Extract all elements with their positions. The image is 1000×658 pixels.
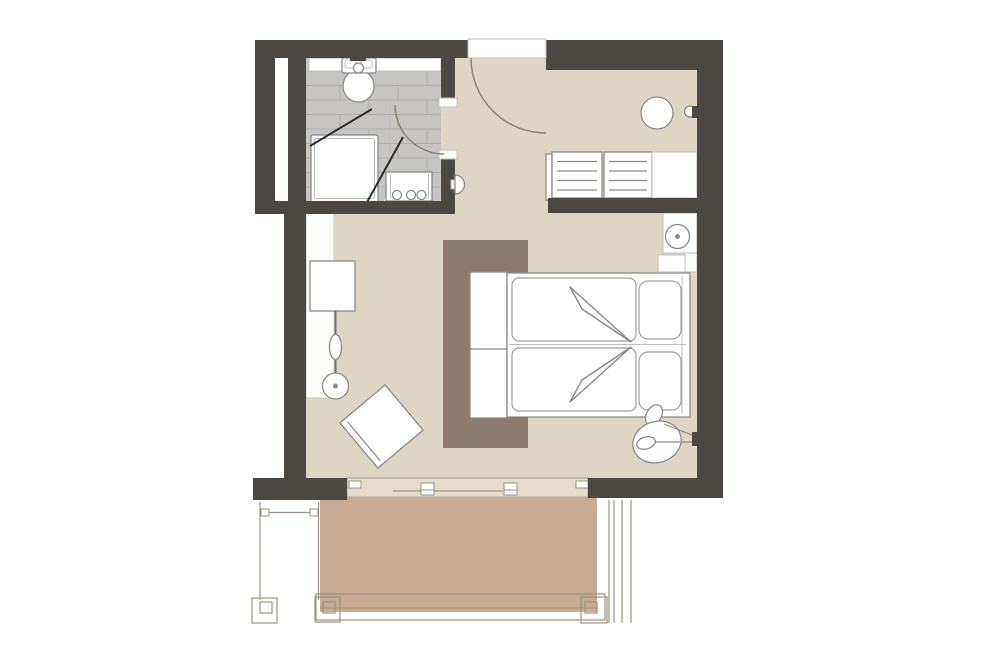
wall-right	[697, 40, 723, 498]
desk-console	[310, 261, 355, 311]
wall-mount-tick	[692, 432, 700, 446]
luggage-bench	[546, 152, 697, 200]
wall-mount-tick	[692, 106, 700, 118]
wall-bathroom-bottom	[288, 201, 455, 214]
railing-left	[260, 502, 319, 600]
foot-bench	[470, 272, 507, 418]
wall-left-inner	[288, 57, 306, 213]
vanity-knob	[417, 191, 426, 200]
bench-arm	[546, 154, 552, 200]
railing-cap	[261, 509, 269, 516]
toilet	[342, 58, 376, 102]
wall-panel-strip	[685, 253, 697, 272]
bathroom	[306, 57, 441, 204]
coat-stand-shade	[330, 335, 342, 360]
railing-cap	[310, 509, 318, 516]
floor-plan-page	[0, 0, 1000, 658]
floor-plan-svg	[0, 0, 1000, 658]
door-handle	[504, 483, 517, 490]
wall-top-right	[546, 40, 723, 70]
shower-tray	[311, 135, 378, 202]
shower	[311, 135, 378, 202]
wall-left-outer	[255, 40, 275, 207]
railing-right	[609, 500, 631, 623]
vanity-knob	[393, 191, 402, 200]
wall-bottom-left	[253, 478, 347, 500]
wall-bottom-right	[588, 478, 723, 498]
terrace-deck	[320, 497, 597, 612]
door-handle	[504, 490, 517, 495]
door-handle	[421, 483, 434, 490]
vanity-knob	[407, 191, 416, 200]
sliding-door-band	[347, 478, 588, 497]
floor-lamp-stem	[333, 384, 338, 389]
door-jamb	[439, 98, 457, 107]
pillow	[639, 352, 681, 410]
sideboard	[652, 152, 697, 198]
vanity-basin	[384, 172, 433, 203]
double-bed	[507, 273, 690, 417]
entrance-door-leaf	[468, 39, 546, 58]
door-handle	[349, 481, 361, 488]
sliding-glass-door	[347, 478, 588, 497]
toilet-bowl	[343, 70, 374, 102]
foot-bench-body	[470, 272, 507, 418]
wall-left	[284, 213, 306, 500]
door-handle	[576, 481, 588, 488]
balcony-terrace	[252, 497, 631, 623]
round-table	[641, 97, 673, 129]
bench-slat-section	[604, 152, 652, 198]
wall-stub	[548, 198, 697, 213]
table-lamp-stem	[675, 234, 680, 239]
flush-button	[350, 55, 366, 61]
toilet-knob	[354, 63, 364, 73]
bench-slat-section	[552, 152, 602, 198]
corner-post	[252, 598, 277, 623]
pillow	[639, 281, 681, 339]
door-handle	[421, 490, 434, 495]
